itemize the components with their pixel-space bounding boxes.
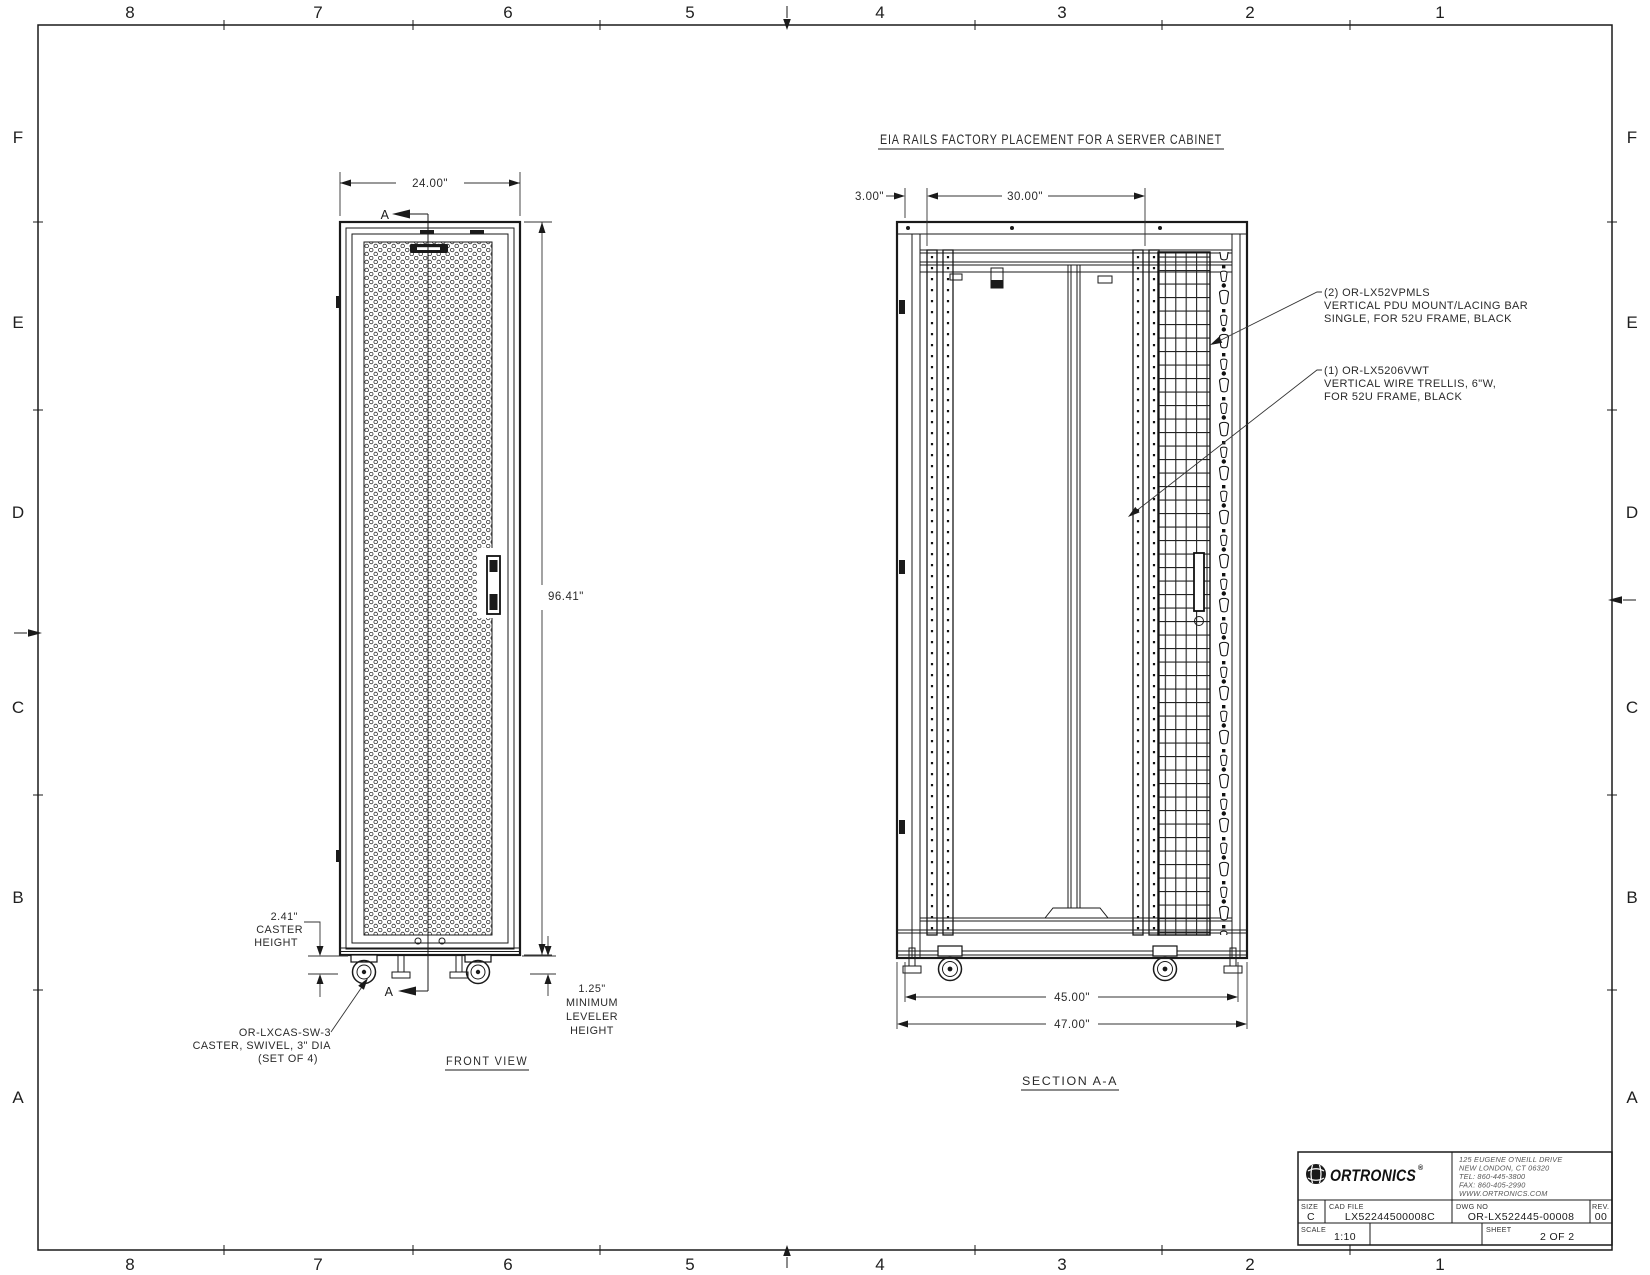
cad-file-value: LX52244500008C <box>1345 1211 1435 1223</box>
zone-col-bottom: 4 <box>875 1255 884 1274</box>
border-rect <box>38 25 1612 1250</box>
front-caster-right <box>465 955 491 984</box>
callout-pdu-line2: VERTICAL PDU MOUNT/LACING BAR <box>1324 300 1528 312</box>
section-cap-bolt <box>1158 226 1162 230</box>
zone-col-top: 8 <box>125 3 134 22</box>
front-caster-height-dim: 2.41" CASTER HEIGHT <box>254 911 348 997</box>
zone-row-right: F <box>1627 128 1637 147</box>
zone-col-bottom: 8 <box>125 1255 134 1274</box>
section-pdu-lacing-bar <box>1213 252 1229 935</box>
caster-height-line1: 2.41" <box>271 911 298 923</box>
zone-col-top: 6 <box>503 3 512 22</box>
dwg-no-label: DWG NO <box>1456 1202 1488 1211</box>
zone-row-right: D <box>1626 503 1638 522</box>
front-view: 24.00" 96.41" A A 2.41" CASTER HEIGHT <box>193 172 619 1070</box>
section-hinge-marks <box>899 300 905 834</box>
center-arrow-stems <box>14 6 1636 1268</box>
zone-row-left: F <box>13 128 23 147</box>
scale-value: 1:10 <box>1334 1231 1356 1243</box>
front-leveler-dim: 1.25" MINIMUM LEVELER HEIGHT <box>522 936 618 1037</box>
caster-callout-line2: CASTER, SWIVEL, 3" DIA <box>193 1040 332 1052</box>
zone-row-right: C <box>1626 698 1638 717</box>
callout-trellis-line1: (1) OR-LX5206VWT <box>1324 365 1429 377</box>
front-view-title: FRONT VIEW <box>446 1054 528 1068</box>
callout-pdu: (2) OR-LX52VPMLS VERTICAL PDU MOUNT/LACI… <box>1210 287 1528 345</box>
zone-col-top: 2 <box>1245 3 1254 22</box>
zone-row-left: E <box>12 313 23 332</box>
callout-pdu-line1: (2) OR-LX52VPMLS <box>1324 287 1430 299</box>
company-address: 125 EUGENE O'NEILL DRIVE NEW LONDON, CT … <box>1459 1155 1562 1198</box>
section-marker-top: A <box>381 208 390 222</box>
leveler-line3: LEVELER <box>566 1011 618 1023</box>
size-label: SIZE <box>1301 1202 1318 1211</box>
drawing-canvas: 8 7 6 5 4 3 2 1 8 7 6 5 4 3 2 1 F E D C … <box>0 0 1650 1275</box>
leveler-line1: 1.25" <box>578 983 605 995</box>
caster-height-line3: HEIGHT <box>254 937 298 949</box>
zone-col-top: 1 <box>1435 3 1444 22</box>
leveler-line4: HEIGHT <box>570 1025 614 1037</box>
border-center-arrows <box>14 6 1636 1268</box>
drawing-title: EIA RAILS FACTORY PLACEMENT FOR A SERVER… <box>878 132 1224 149</box>
zone-col-bottom: 2 <box>1245 1255 1254 1274</box>
section-top-dimensions: 3.00" 30.00" <box>855 188 1145 246</box>
callout-pdu-line3: SINGLE, FOR 52U FRAME, BLACK <box>1324 313 1512 325</box>
dwg-no-value: OR-LX522445-00008 <box>1468 1211 1575 1223</box>
front-width-dimension: 24.00" <box>340 172 520 216</box>
sheet-label: SHEET <box>1486 1225 1512 1234</box>
zone-labels: 8 7 6 5 4 3 2 1 8 7 6 5 4 3 2 1 F E D C … <box>12 3 1638 1274</box>
zone-col-top: 7 <box>313 3 322 22</box>
zone-col-bottom: 1 <box>1435 1255 1444 1274</box>
page-title: EIA RAILS FACTORY PLACEMENT FOR A SERVER… <box>880 132 1222 147</box>
zone-col-bottom: 5 <box>685 1255 694 1274</box>
address-line5: WWW.ORTRONICS.COM <box>1459 1189 1548 1198</box>
zone-row-right: A <box>1626 1088 1638 1107</box>
right-center-arrow-icon <box>1608 596 1622 604</box>
callout-trellis-line2: VERTICAL WIRE TRELLIS, 6"W, <box>1324 378 1496 390</box>
section-outer-width-value: 47.00" <box>1054 1019 1090 1031</box>
drawing-sheet: 8 7 6 5 4 3 2 1 8 7 6 5 4 3 2 1 F E D C … <box>0 0 1650 1275</box>
front-height-value: 96.41" <box>548 591 584 603</box>
zone-col-top: 3 <box>1057 3 1066 22</box>
front-view-label: FRONT VIEW <box>445 1054 529 1070</box>
zone-col-bottom: 3 <box>1057 1255 1066 1274</box>
section-cap-bolt <box>1010 226 1014 230</box>
caster-height-line2: CASTER <box>256 924 303 936</box>
section-offset-value: 3.00" <box>855 191 884 203</box>
section-rails-value: 30.00" <box>1007 191 1043 203</box>
company-name: ORTRONICS <box>1330 1167 1416 1185</box>
zone-row-right: E <box>1626 313 1637 332</box>
ortronics-logo: ORTRONICS ® <box>1306 1164 1424 1185</box>
front-top-tabs <box>420 230 484 234</box>
section-inner-width-dim: 45.00" <box>905 962 1238 1004</box>
section-center-pole <box>1045 265 1108 918</box>
scale-label: SCALE <box>1301 1225 1326 1234</box>
front-caster-left <box>351 955 377 984</box>
caster-callout-line3: (SET OF 4) <box>258 1053 318 1065</box>
zone-col-top: 5 <box>685 3 694 22</box>
section-inner-width-value: 45.00" <box>1054 992 1090 1004</box>
section-view: 3.00" 30.00" 45.00" 47.00" (2) OR-LX52VP… <box>855 188 1528 1090</box>
section-view-label: SECTION A-A <box>1021 1074 1119 1090</box>
front-height-dimension: 96.41" <box>524 222 584 955</box>
front-width-value: 24.00" <box>412 178 448 190</box>
zone-row-left: D <box>12 503 24 522</box>
sheet-border <box>14 6 1636 1268</box>
section-eia-rail-left <box>927 250 953 935</box>
rev-label: REV. <box>1592 1202 1609 1211</box>
callout-trellis-line3: FOR 52U FRAME, BLACK <box>1324 391 1462 403</box>
zone-row-left: B <box>12 888 23 907</box>
sheet-value: 2 OF 2 <box>1540 1231 1575 1243</box>
left-center-arrow-icon <box>28 629 42 637</box>
size-value: C <box>1307 1211 1315 1223</box>
section-view-title: SECTION A-A <box>1022 1074 1118 1088</box>
zone-row-left: A <box>12 1088 24 1107</box>
zone-col-bottom: 6 <box>503 1255 512 1274</box>
zone-col-bottom: 7 <box>313 1255 322 1274</box>
rev-value: 00 <box>1595 1211 1607 1223</box>
section-accessory-clips <box>950 268 1112 288</box>
section-caster-right <box>1153 946 1177 981</box>
front-caster-callout: OR-LXCAS-SW-3 CASTER, SWIVEL, 3" DIA (SE… <box>193 978 368 1065</box>
registered-mark: ® <box>1418 1164 1424 1172</box>
section-marker-bottom: A <box>385 985 394 999</box>
cad-file-label: CAD FILE <box>1329 1202 1364 1211</box>
title-block: ORTRONICS ® 125 EUGENE O'NEILL DRIVE NEW… <box>1298 1152 1612 1245</box>
globe-icon <box>1306 1164 1326 1184</box>
leveler-line2: MINIMUM <box>566 997 618 1009</box>
caster-callout-line1: OR-LXCAS-SW-3 <box>239 1027 331 1039</box>
zone-row-left: C <box>12 698 24 717</box>
zone-row-right: B <box>1626 888 1637 907</box>
border-zone-ticks <box>33 20 1617 1255</box>
section-eia-rail-right <box>1133 250 1159 935</box>
section-caster-left <box>938 946 962 981</box>
section-cap-bolt <box>906 226 910 230</box>
zone-col-top: 4 <box>875 3 884 22</box>
front-levelers <box>392 955 468 978</box>
